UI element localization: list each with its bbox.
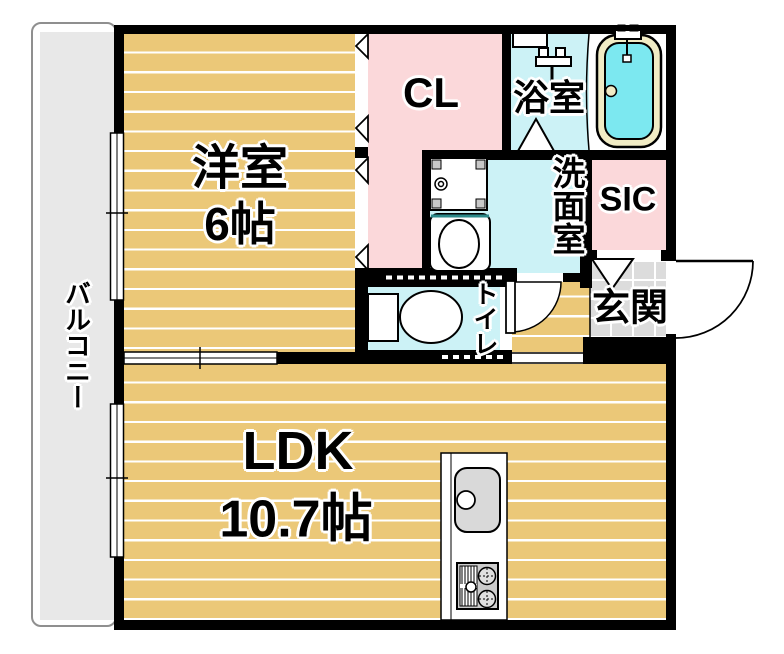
kitchen-sink-icon bbox=[455, 468, 500, 532]
bath-door-triangle-icon bbox=[518, 119, 554, 151]
bathroom-label: 浴室 bbox=[513, 69, 585, 121]
entrance-label: 玄関 bbox=[592, 277, 668, 332]
ldk-size-label: 10.7帖 bbox=[219, 477, 372, 552]
floor-plan: 洋室 6帖 CL 浴室 洗面室 SIC 玄関 トイレ LDK 10.7帖 バルコ… bbox=[0, 0, 784, 654]
balcony-label: バルコニー bbox=[59, 280, 96, 410]
washing-machine-pan-icon bbox=[430, 158, 487, 210]
closet-label: CL bbox=[403, 69, 459, 117]
folding-door-icon bbox=[355, 34, 368, 270]
vanity-sink-icon bbox=[430, 214, 490, 271]
washroom-label: 洗面室 bbox=[542, 156, 590, 255]
western-room-size-label: 6帖 bbox=[204, 188, 276, 254]
gas-stove-icon bbox=[457, 563, 498, 609]
door-swing-arc-icon bbox=[506, 281, 561, 333]
ldk-label: LDK bbox=[243, 420, 354, 482]
shoe-closet-label: SIC bbox=[600, 181, 657, 220]
window-icon bbox=[106, 133, 128, 557]
bath-boundary bbox=[587, 34, 590, 150]
sliding-door-icon bbox=[124, 347, 277, 369]
entrance-door-swing-icon bbox=[666, 261, 753, 338]
toilet-label: トイレ bbox=[466, 281, 502, 356]
bath-mirror-icon bbox=[513, 33, 547, 47]
hall-opening bbox=[512, 352, 583, 364]
toilet-icon bbox=[368, 291, 462, 343]
bathtub-icon bbox=[597, 25, 661, 147]
